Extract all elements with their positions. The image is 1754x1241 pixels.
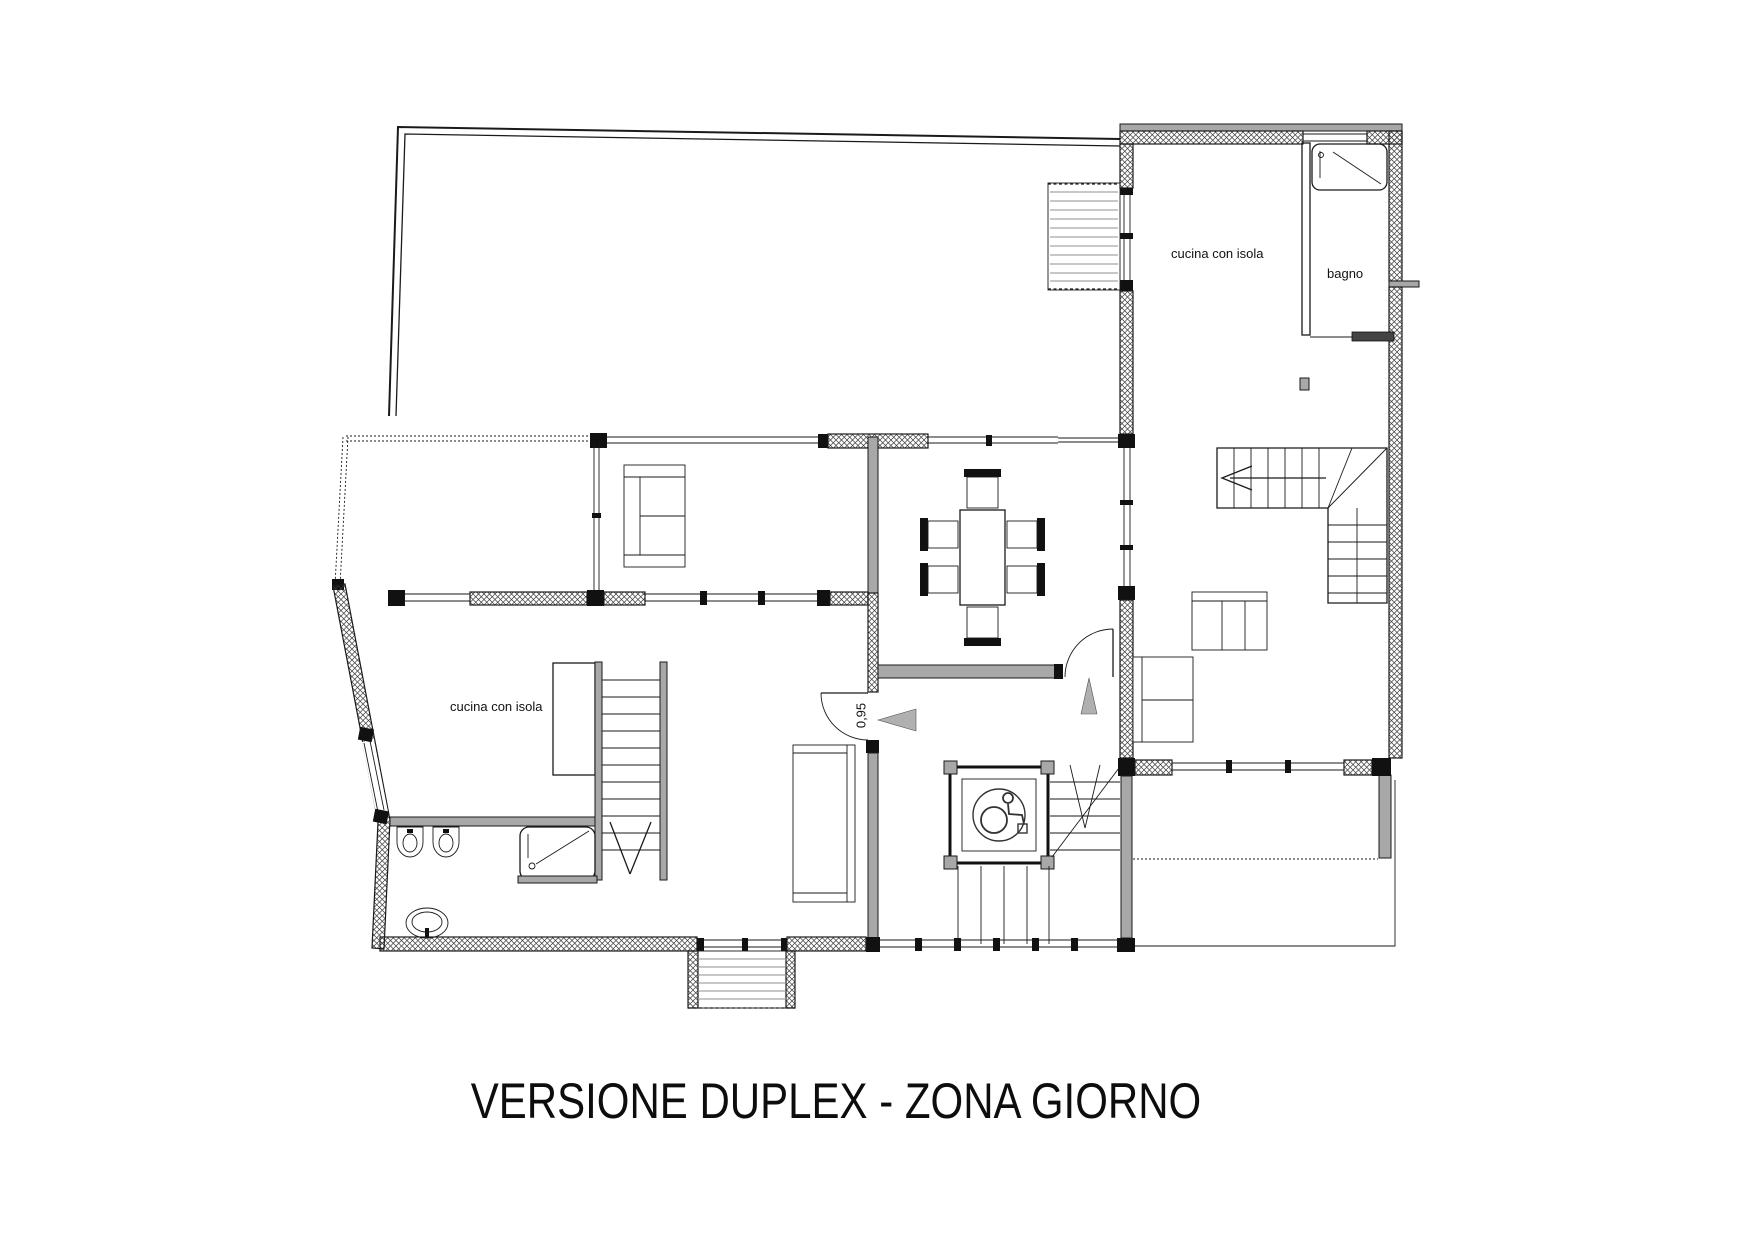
- dining-table: [960, 510, 1005, 605]
- stair-up-arrow: [1222, 466, 1326, 490]
- south-wall-right-wing: [1118, 758, 1391, 776]
- external-stair: [1048, 183, 1120, 290]
- central-staircase: [595, 662, 667, 880]
- right-staircase: [1217, 448, 1387, 603]
- kitchen-island: [553, 663, 595, 775]
- dining-table-set: [920, 469, 1045, 646]
- central-wall: [866, 437, 879, 938]
- corner-sofa-right: [1133, 592, 1267, 742]
- north-wall-left-house: [590, 433, 1122, 448]
- bathroom-lower-left: [390, 817, 597, 938]
- bagno-sliding-door: [1352, 332, 1394, 341]
- sofa-middle-room: [624, 465, 685, 567]
- mid-wall-left-house: [388, 590, 868, 606]
- floor-plan-drawing: [0, 0, 1754, 1241]
- south-wall-left-house: [380, 937, 866, 951]
- plan-title: VERSIONE DUPLEX - ZONA GIORNO: [466, 1072, 1205, 1130]
- shower-tray-bagno: [1312, 144, 1387, 190]
- room-label-kitchen-right: cucina con isola: [1171, 246, 1264, 261]
- porch-steps: [688, 951, 795, 1008]
- floor-plan-page: cucina con isola cucina con isola bagno …: [0, 0, 1754, 1241]
- sofa-living-room: [793, 745, 855, 902]
- stair-down-arrow: [610, 822, 651, 874]
- room-label-bathroom: bagno: [1327, 266, 1363, 281]
- door-width-dimension: 0,95: [854, 698, 869, 734]
- window-mullion-vertical: [592, 443, 601, 590]
- room-label-kitchen-left: cucina con isola: [450, 699, 543, 714]
- main-entrance-door: [1065, 629, 1113, 677]
- wheelchair-lift: [944, 761, 1054, 869]
- south-wall-entry: [866, 937, 1120, 952]
- terrace-railing: [332, 436, 590, 590]
- beam-end-post: [1054, 664, 1063, 679]
- entry-arrow-up: [1081, 678, 1097, 714]
- entry-arrow-left: [878, 709, 916, 731]
- north-wall-right-wing: [1120, 124, 1402, 144]
- shower-tray: [520, 827, 595, 880]
- terrace-outline: [389, 127, 1120, 416]
- sink: [406, 908, 448, 938]
- hall-partition-beam: [878, 665, 1056, 678]
- west-wall-left-house: [333, 584, 390, 949]
- bidet: [397, 827, 423, 857]
- toilet: [433, 827, 459, 857]
